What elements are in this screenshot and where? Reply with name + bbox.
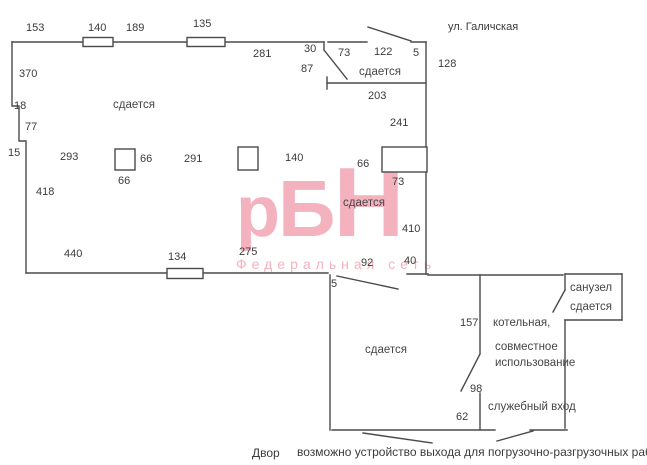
- dimension-label: 73: [392, 176, 404, 188]
- window-icon: [187, 38, 225, 47]
- dimension-label: 241: [390, 117, 408, 129]
- dimension-label: 293: [60, 151, 78, 163]
- dimension-label: 410: [402, 223, 420, 235]
- column: [238, 147, 258, 170]
- dimension-label: 98: [470, 383, 482, 395]
- possible-exit-mark: [363, 433, 432, 443]
- dimension-label: 66: [118, 175, 130, 187]
- dimension-label: 122: [374, 46, 392, 58]
- dimension-label: 418: [36, 186, 54, 198]
- niche: [382, 147, 427, 172]
- column: [115, 149, 135, 170]
- dimension-label: 291: [184, 153, 202, 165]
- dimension-label: 62: [456, 411, 468, 423]
- dimension-label: 134: [168, 251, 186, 263]
- dimension-label: 128: [438, 58, 456, 70]
- room-status-label: сдается: [359, 66, 401, 78]
- room-name-label: использование: [495, 357, 575, 369]
- yard-label: Двор: [252, 447, 280, 459]
- dimension-label: 73: [338, 47, 350, 59]
- dimension-label: 40: [404, 255, 416, 267]
- room-status-label: сдается: [113, 99, 155, 111]
- room-name-label: санузел: [570, 282, 612, 294]
- dimension-label: 77: [25, 121, 37, 133]
- dimension-label: 140: [285, 152, 303, 164]
- dimension-label: 135: [193, 18, 211, 30]
- dimension-label: 189: [126, 22, 144, 34]
- room-status-label: сдается: [343, 197, 385, 209]
- window-icon: [167, 269, 203, 279]
- dimension-label: 92: [361, 257, 373, 269]
- room-name-label: котельная,: [493, 317, 550, 329]
- room-status-label: сдается: [570, 301, 612, 313]
- floor-plan-drawing: [0, 0, 647, 465]
- dimension-label: 370: [19, 68, 37, 80]
- dimension-label: 153: [26, 22, 44, 34]
- dimension-label: 66: [357, 158, 369, 170]
- door-leaf-icon: [337, 276, 398, 289]
- room-name-label: служебный вход: [488, 401, 576, 413]
- door-leaf-icon: [553, 290, 565, 312]
- dimension-label: 18: [14, 100, 26, 112]
- possible-exit-mark: [497, 431, 533, 441]
- dimension-label: 87: [301, 63, 313, 75]
- dimension-label: 281: [253, 48, 271, 60]
- exit-note-label: возможно устройство выхода для погрузочн…: [297, 446, 647, 458]
- room-name-label: совместное: [495, 341, 558, 353]
- dimension-label: 140: [88, 22, 106, 34]
- dimension-label: 440: [64, 248, 82, 260]
- street-name-label: ул. Галичская: [448, 21, 518, 33]
- dimension-label: 157: [460, 317, 478, 329]
- dimension-label: 30: [304, 43, 316, 55]
- dimension-label: 5: [413, 47, 419, 59]
- dimension-label: 15: [8, 147, 20, 159]
- dimension-label: 66: [140, 153, 152, 165]
- window-icon: [83, 38, 113, 47]
- dimension-label: 5: [331, 278, 337, 290]
- floor-plan: р Б Н Федеральная сеть: [0, 0, 647, 465]
- dimension-label: 275: [239, 246, 257, 258]
- room-status-label: сдается: [365, 344, 407, 356]
- dimension-label: 203: [368, 90, 386, 102]
- door-leaf-icon: [368, 27, 411, 41]
